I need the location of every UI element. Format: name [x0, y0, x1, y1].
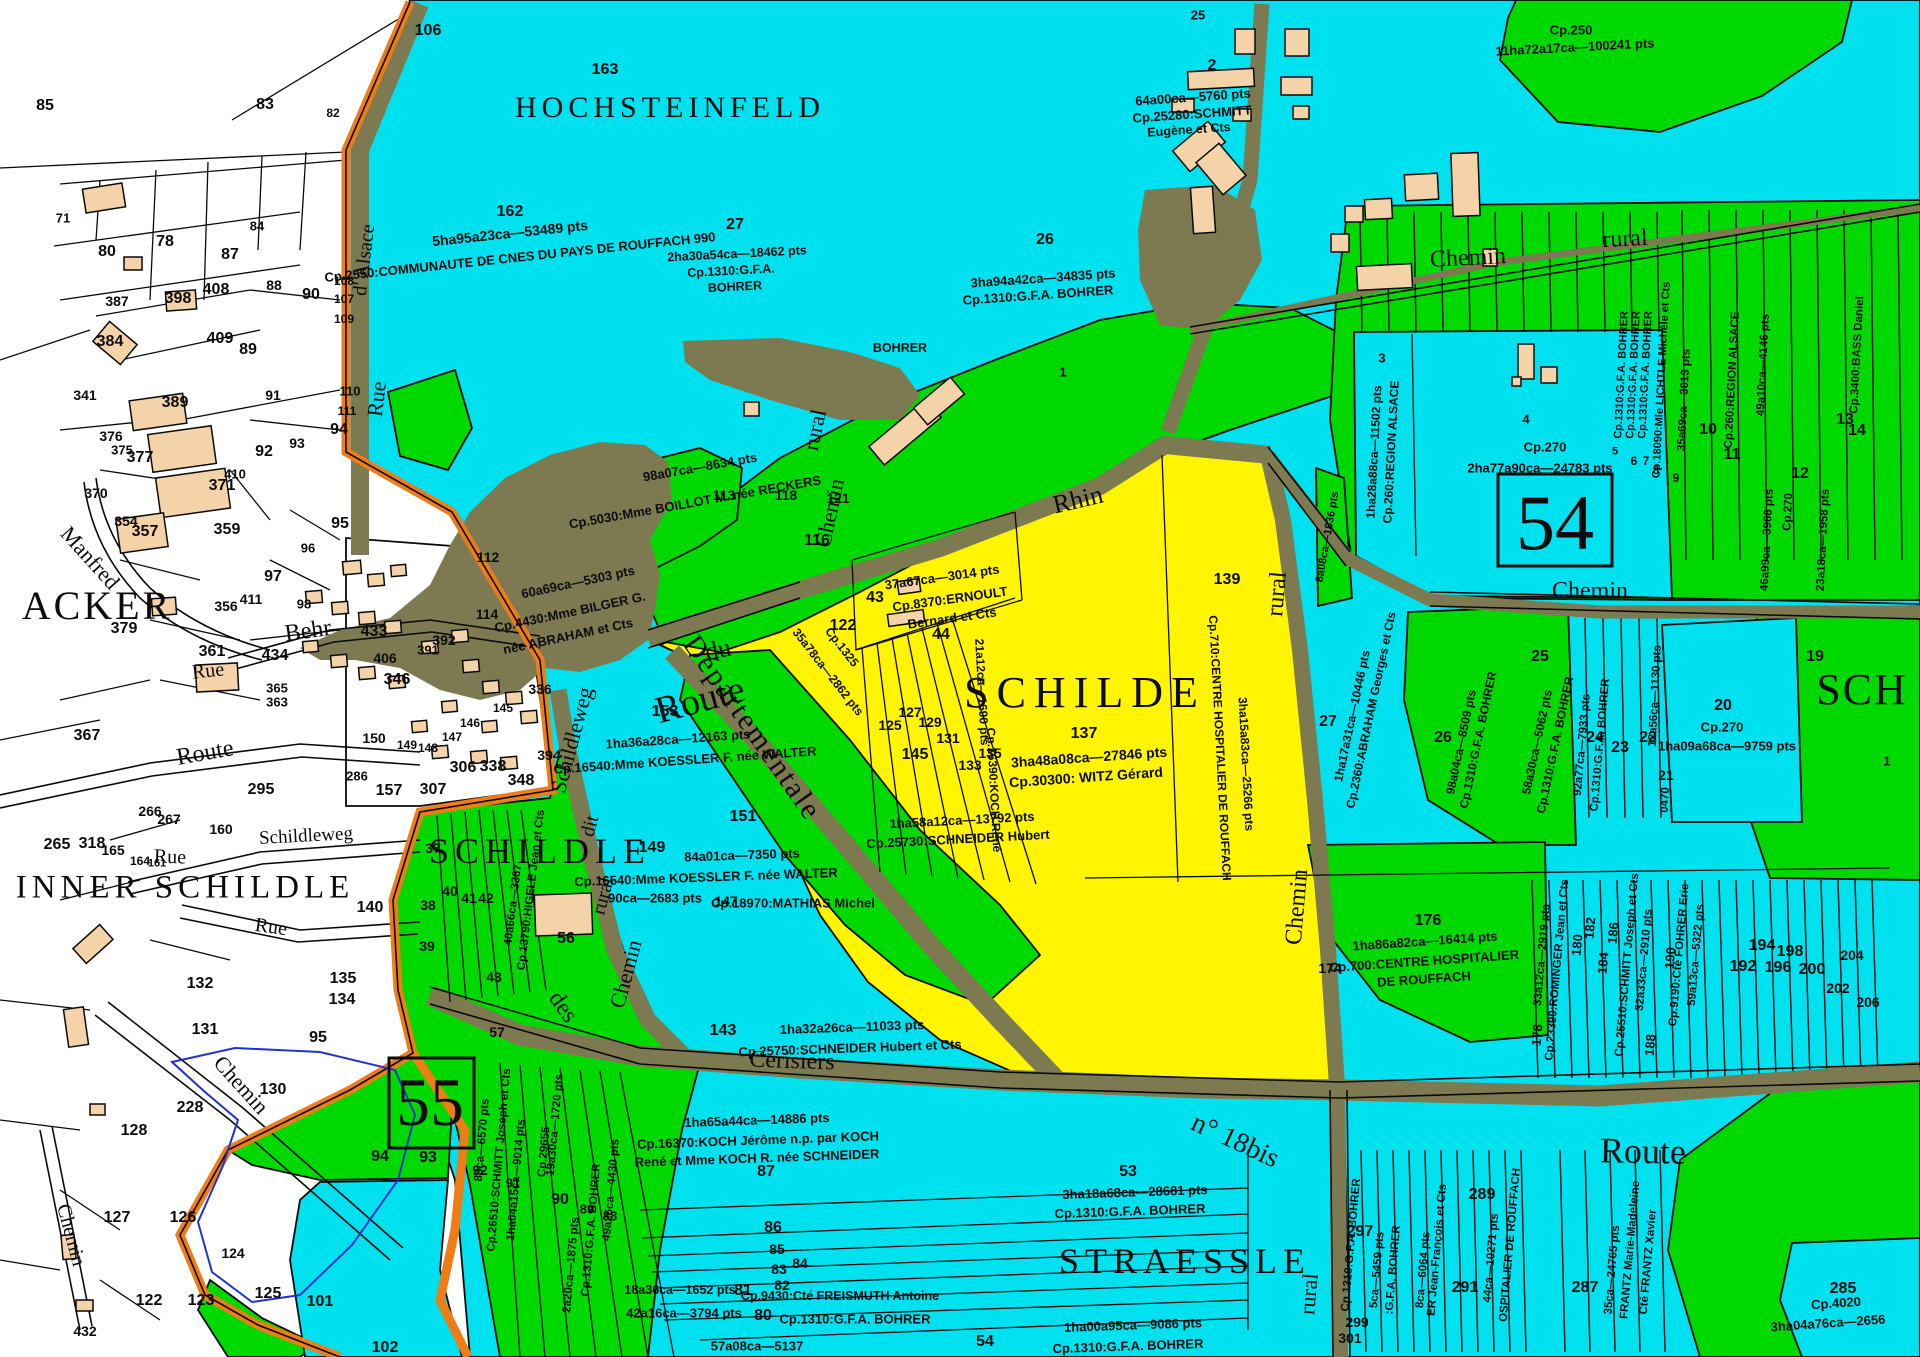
parcel-number: 123 — [188, 1293, 215, 1309]
parcel-number: 88 — [266, 278, 282, 292]
road-label: Chemin — [606, 938, 645, 1011]
ownership-annotation: Cp.18970:MATHIAS Michel — [711, 897, 875, 910]
parcel-number: 379 — [111, 621, 138, 637]
parcel-number: 83 — [771, 1262, 787, 1276]
parcel-number: 299 — [1345, 1315, 1368, 1329]
parcel-number: 129 — [918, 715, 941, 729]
ownership-annotation: 46a99ca—3966 pts — [1760, 489, 1777, 592]
ownership-annotation: Cp.250 — [1550, 24, 1593, 37]
parcel-number: 23 — [1611, 740, 1629, 756]
parcel-number: 96 — [301, 542, 315, 555]
parcel-number: 3 — [1378, 352, 1385, 365]
parcel-number: 186 — [1606, 922, 1621, 945]
parcel-number: 206 — [1856, 995, 1879, 1009]
parcel-number: 122 — [136, 1293, 163, 1309]
ownership-annotation: Cp.260:REGION ALSACE — [1381, 380, 1400, 523]
parcel-number: 192 — [1730, 959, 1757, 975]
parcel-number: 148 — [418, 742, 438, 754]
ownership-annotation: 1ha58a12ca—13792 pts — [889, 810, 1035, 831]
parcel-number: 39 — [419, 939, 435, 953]
sheet-number: 54 — [1516, 484, 1594, 562]
parcel-number: 19 — [1806, 649, 1824, 665]
ownership-annotation: OSPITALIER DE ROUFFACH — [1499, 1168, 1524, 1323]
parcel-number: 200 — [1799, 962, 1826, 978]
parcel-number: 132 — [187, 976, 214, 992]
parcel-number: 432 — [73, 1324, 96, 1338]
parcel-number: 1 — [1059, 366, 1066, 379]
parcel-number: 434 — [262, 648, 289, 664]
road-label: Rhin — [1050, 482, 1105, 519]
parcel-number: 151 — [730, 809, 757, 825]
parcel-number: 348 — [508, 773, 535, 789]
parcel-number: 336 — [528, 682, 551, 696]
parcel-number: 97 — [264, 569, 282, 585]
parcel-number: 365 — [266, 682, 288, 695]
parcel-number: 124 — [221, 1246, 244, 1260]
parcel-number: 140 — [357, 900, 384, 916]
parcel-number: 176 — [1415, 913, 1442, 929]
ownership-annotation: 1ha04a15ca—9014 pts — [506, 1119, 528, 1242]
parcel-number: 90 — [302, 287, 320, 303]
ownership-annotation: 44ca—10271 pts — [1482, 1213, 1501, 1303]
ownership-annotation: 49a26ca—4430 pts — [602, 1139, 622, 1242]
ownership-annotation: BOHRER — [873, 342, 927, 355]
ownership-annotation: 1ha00a95ca—9086 pts — [1064, 1316, 1202, 1334]
parcel-number: 160 — [209, 822, 232, 836]
parcel-number: 267 — [157, 812, 180, 826]
map-labels: HOCHSTEINFELDSCHILDESCHILDLEINNER SCHILD… — [0, 0, 1920, 1357]
parcel-number: 116 — [804, 533, 830, 549]
ownership-annotation: 1ha65a44ca—14886 pts — [684, 1111, 830, 1129]
ownership-annotation: 3ha04a76ca—2656 — [1770, 1313, 1886, 1334]
road-label: Route — [1600, 1132, 1687, 1169]
ownership-annotation: Cp.710:CENTRE HOSPITALIER DE ROUFFACH — [1207, 615, 1233, 881]
place-label: ACKER — [22, 586, 173, 626]
place-label: SCH — [1816, 668, 1908, 712]
parcel-number: 57 — [489, 1025, 505, 1039]
parcel-number: 12 — [1791, 466, 1809, 482]
parcel-number: 377 — [127, 450, 154, 466]
parcel-number: 53 — [1119, 1164, 1137, 1180]
parcel-number: 44 — [932, 627, 950, 643]
parcel-number: 87 — [757, 1164, 775, 1180]
parcel-number: 387 — [105, 294, 128, 308]
ownership-annotation: Cp.270 — [1701, 721, 1744, 734]
parcel-number: 94 — [371, 1149, 389, 1165]
parcel-number: 38 — [420, 898, 436, 912]
ownership-annotation: 3ha18a68ca—28681 pts — [1062, 1183, 1208, 1201]
parcel-number: 107 — [334, 293, 354, 305]
place-label: STRAESSLE — [1059, 1243, 1311, 1279]
parcel-number: 356 — [214, 599, 237, 613]
parcel-number: 149 — [397, 739, 417, 751]
parcel-number: 27 — [1319, 714, 1337, 730]
parcel-number: 178 — [1530, 1024, 1545, 1047]
parcel-number: 389 — [162, 395, 189, 411]
parcel-number: 182 — [1583, 917, 1598, 940]
parcel-number: 125 — [255, 1286, 282, 1302]
ownership-annotation: BOHRER — [708, 279, 763, 294]
ownership-annotation: Cp.1310:G.F.A. BOHRER — [580, 1163, 603, 1297]
parcel-number: 87 — [221, 247, 239, 263]
ownership-annotation: Cp.4020 — [1811, 1295, 1862, 1311]
parcel-number: 149 — [639, 840, 666, 856]
parcel-number: 101 — [307, 1294, 334, 1310]
place-label: SCHILDE — [964, 671, 1206, 715]
ownership-annotation: Cp.1310:G.F.A. BOHRER — [1340, 1178, 1363, 1312]
cadastral-map: HOCHSTEINFELDSCHILDESCHILDLEINNER SCHILD… — [0, 0, 1920, 1357]
place-label: HOCHSTEINFELD — [515, 93, 825, 123]
parcel-number: 26 — [1434, 730, 1452, 746]
parcel-number: 408 — [203, 282, 230, 298]
parcel-number: 37 — [425, 841, 441, 855]
ownership-annotation: 35a69ca—3013 pts — [1677, 349, 1694, 452]
parcel-number: 78 — [156, 234, 174, 250]
parcel-number: 194 — [1749, 938, 1776, 954]
parcel-number: 130 — [260, 1082, 287, 1098]
parcel-number: 7 — [1643, 455, 1650, 467]
road-label: Schildleweg — [259, 824, 354, 848]
parcel-number: 384 — [97, 334, 124, 350]
parcel-number: 80 — [98, 244, 116, 260]
parcel-number: 392 — [432, 633, 455, 647]
ownership-annotation: Cp.1310:G.F.A. BOHRER — [1052, 1337, 1203, 1355]
ownership-annotation: 2ha77a90ca—24783 pts — [1467, 462, 1612, 475]
parcel-number: 2 — [1208, 58, 1217, 74]
parcel-number: 394 — [537, 748, 560, 762]
parcel-number: 165 — [101, 843, 124, 857]
place-label: INNER SCHILDLE — [16, 872, 355, 905]
parcel-number: 301 — [1338, 1331, 1361, 1345]
ownership-annotation: Cp.270 — [1524, 441, 1567, 454]
ownership-annotation: 3ha15a83ca—25266 pts — [1236, 697, 1255, 832]
parcel-number: 110 — [340, 385, 361, 398]
ownership-annotation: 2a20ca—1875 pts — [562, 1217, 582, 1314]
parcel-number: 89 — [239, 342, 257, 358]
parcel-number: 40 — [442, 884, 458, 898]
parcel-number: 112 — [477, 550, 500, 564]
parcel-number: 150 — [362, 731, 385, 745]
parcel-number: 147 — [442, 731, 462, 743]
parcel-number: 114 — [476, 607, 499, 621]
parcel-number: 43 — [866, 590, 884, 606]
parcel-number: 125 — [878, 718, 901, 732]
road-label: rural — [1602, 226, 1649, 252]
parcel-number: 10 — [1699, 422, 1717, 438]
parcel-number: 146 — [460, 717, 480, 729]
ownership-annotation: 88ca—6570 pts — [474, 1098, 493, 1182]
parcel-number: 202 — [1826, 981, 1849, 995]
ownership-annotation: 0470 — [1660, 787, 1673, 813]
road-label: rural — [1296, 1272, 1322, 1315]
parcel-number: 346 — [384, 672, 411, 688]
parcel-number: 41 — [461, 891, 477, 905]
parcel-number: 131 — [192, 1022, 219, 1038]
parcel-number: 131 — [936, 731, 959, 745]
parcel-number: 228 — [177, 1100, 204, 1116]
ownership-annotation: 5ha95a23ca—53489 pts — [431, 218, 588, 248]
parcel-number: 139 — [1214, 572, 1241, 588]
parcel-number: 95 — [309, 1030, 327, 1046]
parcel-number: 82 — [326, 107, 339, 119]
parcel-number: 341 — [73, 388, 96, 402]
ownership-annotation: 90ca—2683 pts — [608, 892, 702, 905]
ownership-annotation: 59a13ca—5322 pts — [1687, 904, 1707, 1007]
ownership-annotation: 18a36ca—1652 pts — [624, 1284, 735, 1297]
parcel-number: 71 — [56, 212, 70, 225]
ownership-annotation: Cp.25750:SCHNEIDER Hubert et Cts — [738, 1038, 962, 1059]
ownership-annotation: 23a18ca—1958 pts — [1816, 489, 1833, 592]
road-label: Schildleweg — [547, 685, 596, 796]
parcel-number: 111 — [338, 405, 357, 417]
parcel-number: 9 — [1673, 472, 1680, 484]
ownership-annotation: DE ROUFFACH — [1377, 969, 1472, 989]
parcel-number: 184 — [1596, 952, 1611, 975]
parcel-number: 162 — [497, 204, 524, 220]
road-label: Rue — [254, 915, 289, 939]
parcel-number: 145 — [493, 702, 513, 714]
parcel-number: 357 — [132, 524, 159, 540]
parcel-number: 153 — [652, 704, 679, 720]
ownership-annotation: 98a07ca—8634 pts — [642, 451, 758, 484]
parcel-number: 291 — [1452, 1280, 1479, 1296]
road-label: Chemin — [1282, 868, 1313, 946]
parcel-number: 121 — [826, 491, 849, 505]
parcel-number: 27 — [726, 217, 744, 233]
road-label: Rue — [364, 380, 390, 418]
parcel-number: 143 — [710, 1023, 737, 1039]
parcel-number: 287 — [1572, 1280, 1599, 1296]
parcel-number: 91 — [265, 388, 281, 402]
parcel-number: 367 — [74, 728, 101, 744]
parcel-number: 54 — [976, 1334, 994, 1350]
parcel-number: 4 — [1522, 413, 1529, 426]
parcel-number: 406 — [373, 651, 396, 665]
parcel-number: 20 — [1714, 698, 1732, 714]
road-label: rural — [1263, 570, 1291, 617]
ownership-annotation: 49a10ca—4146 pts — [1756, 314, 1773, 417]
ownership-annotation: Cp.1310:G.F.A. — [687, 262, 775, 279]
parcel-number: 134 — [329, 992, 356, 1008]
road-label: rural — [800, 407, 830, 452]
ownership-annotation: :G.F.A. BOHRER — [1384, 1225, 1403, 1315]
ownership-annotation: 11ha72a17ca—100241 pts — [1495, 36, 1654, 57]
parcel-number: 95 — [331, 516, 349, 532]
parcel-number: 6 — [1631, 455, 1638, 467]
parcel-number: 128 — [121, 1123, 148, 1139]
parcel-number: 94 — [330, 422, 348, 438]
parcel-number: 157 — [376, 783, 403, 799]
parcel-number: 188 — [1643, 1034, 1658, 1057]
road-label: n° 18bis — [1187, 1109, 1283, 1174]
parcel-number: 56 — [557, 931, 575, 947]
parcel-number: 21 — [1658, 768, 1674, 782]
parcel-number: 145 — [902, 747, 929, 763]
parcel-number: 106 — [415, 23, 442, 39]
parcel-number: 14 — [1848, 423, 1866, 439]
ownership-annotation: 57a08ca—5137 — [711, 1340, 804, 1353]
road-label: Behr — [283, 616, 333, 646]
sheet-number: 55 — [396, 1068, 464, 1136]
road-label: Route — [175, 736, 236, 770]
parcel-number: 5 — [1612, 447, 1618, 458]
parcel-number: 80 — [754, 1308, 772, 1324]
parcel-number: 361 — [199, 644, 226, 660]
parcel-number: 25 — [1531, 649, 1549, 665]
parcel-number: 398 — [165, 291, 192, 307]
ownership-annotation: Cp.270 — [1782, 493, 1795, 531]
parcel-number: 42 — [478, 891, 494, 905]
road-label: des — [544, 987, 582, 1027]
parcel-number: 198 — [1777, 944, 1804, 960]
ownership-annotation: Cp.9430:Cté FREISMUTH Antoine — [741, 1290, 939, 1303]
parcel-number: 135 — [330, 971, 357, 987]
parcel-number: 84 — [792, 1256, 808, 1270]
parcel-number: 126 — [170, 1210, 197, 1226]
parcel-number: 163 — [592, 62, 619, 78]
road-label: Chemin — [53, 1202, 89, 1268]
ownership-annotation: 32a33ca—2910 pts — [1635, 909, 1655, 1012]
parcel-number: 161 — [148, 859, 166, 870]
parcel-number: 92 — [255, 444, 273, 460]
parcel-number: 289 — [1469, 1187, 1496, 1203]
ownership-annotation: 1ha09a68ca—9759 pts — [1658, 740, 1796, 753]
ownership-annotation: 2ha30a54ca—18462 pts — [667, 244, 807, 264]
parcel-number: 85 — [36, 98, 54, 114]
ownership-annotation: Cté FRANTZ Xavier — [1639, 1209, 1660, 1315]
parcel-number: 102 — [372, 1340, 399, 1356]
parcel-number: 90 — [551, 1192, 569, 1208]
parcel-number: 204 — [1840, 948, 1863, 962]
ownership-annotation: Cp.1310:G.F.A. BOHRER — [780, 1313, 931, 1326]
parcel-number: 137 — [1071, 726, 1098, 742]
parcel-number: 93 — [419, 1150, 437, 1166]
road-label: Départementale — [677, 630, 827, 826]
road-label: Rue — [191, 659, 225, 682]
ownership-annotation: 8a08ca—1836 pts — [1315, 491, 1342, 583]
parcel-number: 363 — [266, 696, 288, 709]
parcel-number: 86 — [764, 1220, 782, 1236]
parcel-number: 11 — [1724, 447, 1741, 463]
parcel-number: 307 — [420, 782, 447, 798]
parcel-number: 93 — [289, 436, 305, 450]
parcel-number: 410 — [224, 468, 246, 481]
ownership-annotation: 84a01ca—7350 pts — [684, 846, 800, 863]
parcel-number: 338 — [480, 759, 507, 775]
parcel-number: 83 — [256, 97, 274, 113]
parcel-number: 109 — [334, 313, 354, 325]
parcel-number: 409 — [207, 331, 234, 347]
parcel-number: 376 — [99, 429, 122, 443]
parcel-number: 306 — [450, 760, 477, 776]
ownership-annotation: 42a16ca—3794 pts — [626, 1307, 742, 1320]
parcel-number: 265 — [44, 837, 71, 853]
parcel-number: 359 — [214, 522, 241, 538]
parcel-number: 85 — [769, 1242, 785, 1256]
parcel-number: 43 — [486, 970, 502, 984]
ownership-annotation: Cp.3400:BASS Daniel — [1849, 296, 1867, 414]
parcel-number: 370 — [84, 486, 107, 500]
road-label: Chemin — [1429, 244, 1506, 272]
parcel-number: 433 — [361, 624, 388, 640]
parcel-number: 196 — [1765, 960, 1792, 976]
parcel-number: 411 — [240, 592, 263, 606]
parcel-number: 1 — [1883, 755, 1890, 768]
ownership-annotation: 1ha36a28ca—12163 pts — [605, 727, 751, 750]
road-label: Chemin — [1552, 579, 1628, 603]
ownership-annotation: Cp.1310:G.F.A. BOHRER — [1054, 1202, 1205, 1220]
parcel-number: 127 — [104, 1210, 131, 1226]
parcel-number: 25 — [1191, 9, 1205, 22]
ownership-annotation: 1ha32a26ca—11033 pts — [780, 1018, 925, 1036]
parcel-number: 84 — [250, 220, 264, 233]
parcel-number: 295 — [248, 782, 275, 798]
parcel-number: 98 — [297, 598, 311, 611]
parcel-number: 286 — [346, 770, 368, 783]
ownership-annotation: Cp.260:REGION ALSACE — [1724, 311, 1743, 448]
ownership-annotation: 12a56ca—1130 pts — [1648, 645, 1665, 747]
parcel-number: 26 — [1036, 232, 1054, 248]
